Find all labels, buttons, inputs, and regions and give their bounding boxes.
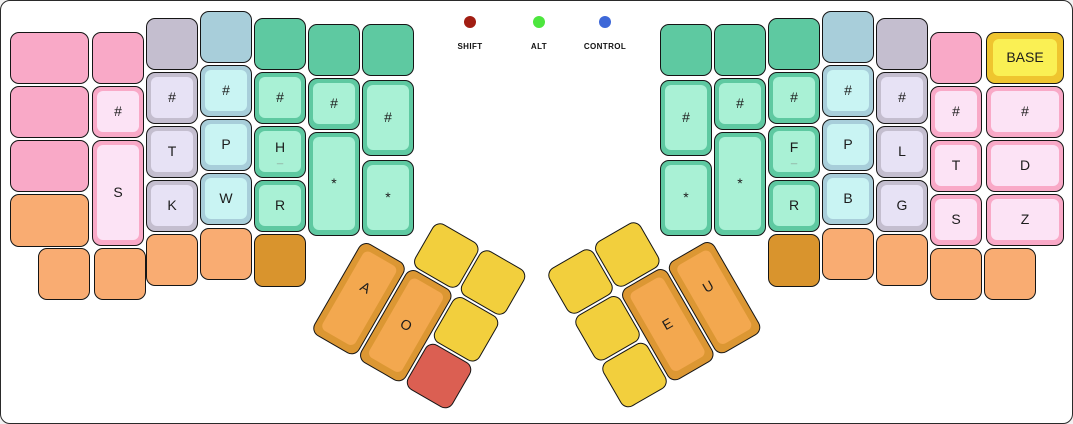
lh-w-key[interactable]: W <box>200 173 252 225</box>
lt-a-key-label: A <box>357 279 373 297</box>
lh-col5-row1-key[interactable] <box>254 18 306 70</box>
lh-s-key[interactable]: S <box>92 140 144 246</box>
control-indicator-label: CONTROL <box>584 42 626 51</box>
rh-col5-number-key-cap: # <box>881 77 923 118</box>
lh-col3-row1-key[interactable] <box>146 18 198 70</box>
lh-col6-number-key-label: # <box>330 96 338 111</box>
rh-s-key-cap: S <box>935 199 977 240</box>
rh-r-key-label: R <box>789 198 799 213</box>
rh-l-key-label: L <box>898 144 906 159</box>
lh-col7-number-key-label: # <box>384 110 392 125</box>
lh-col1-row1-key[interactable] <box>10 32 89 84</box>
steno-keyboard-visualizer-panel: SHIFTALTCONTROL #S#TK#PW#H_R#*#*#*#*#F_R… <box>0 0 1073 424</box>
rh-col4-number-key-label: # <box>844 83 852 98</box>
rh-col3-row1-key[interactable] <box>768 18 820 70</box>
rh-star-key-2-label: * <box>737 176 742 191</box>
lh-col2-number-key-label: # <box>114 104 122 119</box>
rh-col1-row1-key[interactable] <box>660 24 712 76</box>
lh-col5-number-key-label: # <box>276 90 284 105</box>
lh-col3-number-key-label: # <box>168 90 176 105</box>
rh-col5-row1-key[interactable] <box>876 18 928 70</box>
rh-col1-number-key-label: # <box>682 110 690 125</box>
rh-r-key-cap: R <box>773 185 815 226</box>
rh-b-key-cap: B <box>827 178 869 219</box>
rh-col5-number-key[interactable]: # <box>876 72 928 124</box>
layer-indicator-base-key-label: BASE <box>1006 50 1043 65</box>
lh-t-key[interactable]: T <box>146 126 198 178</box>
lh-bottom-key-2[interactable] <box>94 248 146 300</box>
rh-col7-number-key-label: # <box>1021 104 1029 119</box>
rh-p-key-cap: P <box>827 124 869 165</box>
lh-col5-number-key-cap: # <box>259 77 301 118</box>
lh-bottom-key-4[interactable] <box>200 228 252 280</box>
rh-col7-number-key-cap: # <box>991 91 1059 132</box>
rh-col6-number-key[interactable]: # <box>930 86 982 138</box>
rh-g-key-label: G <box>897 198 908 213</box>
lh-star-key-1-label: * <box>331 176 336 191</box>
rh-r-key[interactable]: R <box>768 180 820 232</box>
control-status-dot-icon <box>599 16 611 28</box>
rh-col4-row1-key[interactable] <box>822 11 874 63</box>
lh-r-key-cap: R <box>259 185 301 226</box>
rh-g-key[interactable]: G <box>876 180 928 232</box>
lh-bottom-key-3[interactable] <box>146 234 198 286</box>
lh-w-key-cap: W <box>205 178 247 219</box>
lh-t-key-cap: T <box>151 131 193 172</box>
rh-p-key[interactable]: P <box>822 119 874 171</box>
rh-f-key[interactable]: F_ <box>768 126 820 178</box>
rh-z-key-label: Z <box>1021 212 1030 227</box>
lh-col6-number-key-cap: # <box>313 83 355 124</box>
lh-r-key[interactable]: R <box>254 180 306 232</box>
lh-r-key-label: R <box>275 198 285 213</box>
lh-k-key-cap: K <box>151 185 193 226</box>
lh-col1-row3-key[interactable] <box>10 140 89 192</box>
lh-k-key-label: K <box>167 198 176 213</box>
rh-s-key[interactable]: S <box>930 194 982 246</box>
lh-col4-number-key-cap: # <box>205 70 247 111</box>
rh-bottom-key-5[interactable] <box>984 248 1036 300</box>
rh-star-key-2[interactable]: * <box>714 132 766 236</box>
lh-col6-number-key[interactable]: # <box>308 78 360 130</box>
indicator-control: CONTROL <box>560 16 650 51</box>
rh-bottom-key-4[interactable] <box>930 248 982 300</box>
rh-bottom-key-2[interactable] <box>822 228 874 280</box>
rh-col2-number-key-cap: # <box>719 83 761 124</box>
lh-col3-number-key[interactable]: # <box>146 72 198 124</box>
rh-star-key-2-cap: * <box>719 137 761 230</box>
rh-col2-number-key-label: # <box>736 96 744 111</box>
rh-z-key[interactable]: Z <box>986 194 1064 246</box>
lh-t-key-label: T <box>168 144 177 159</box>
lh-p-key-label: P <box>221 137 230 152</box>
layer-indicator-base-key-cap: BASE <box>993 39 1057 76</box>
rh-col4-number-key[interactable]: # <box>822 65 874 117</box>
lh-col6-row1-key[interactable] <box>308 24 360 76</box>
rh-l-key-cap: L <box>881 131 923 172</box>
lh-col3-number-key-cap: # <box>151 77 193 118</box>
lh-bottom-key-5[interactable] <box>254 234 306 287</box>
lh-star-key-1[interactable]: * <box>308 132 360 236</box>
rh-t-key[interactable]: T <box>930 140 982 192</box>
rt-u-key-label: U <box>700 278 716 296</box>
lh-col2-number-key[interactable]: # <box>92 86 144 138</box>
rh-d-key-label: D <box>1020 158 1030 173</box>
rh-t-key-label: T <box>952 158 961 173</box>
rt-e-key-label: E <box>660 315 676 333</box>
lh-col1-row4-key[interactable] <box>10 194 89 247</box>
lh-h-key[interactable]: H_ <box>254 126 306 178</box>
alt-status-dot-icon <box>533 16 545 28</box>
lh-col2-row1-key[interactable] <box>92 32 144 84</box>
rh-star-key-1-label: * <box>683 190 688 205</box>
lh-star-key-2[interactable]: * <box>362 160 414 236</box>
rh-z-key-cap: Z <box>991 199 1059 240</box>
shift-status-dot-icon <box>464 16 476 28</box>
rh-bottom-key-1[interactable] <box>768 234 820 287</box>
lh-col7-number-key[interactable]: # <box>362 80 414 156</box>
rh-d-key[interactable]: D <box>986 140 1064 192</box>
lh-star-key-2-label: * <box>385 190 390 205</box>
rh-col2-row1-key[interactable] <box>714 24 766 76</box>
rh-col6-row1-key[interactable] <box>930 32 982 84</box>
lh-w-key-label: W <box>219 191 232 206</box>
rh-col6-number-key-label: # <box>952 104 960 119</box>
rh-col7-number-key[interactable]: # <box>986 86 1064 138</box>
shift-indicator-label: SHIFT <box>457 42 482 51</box>
lh-col7-row1-key[interactable] <box>362 24 414 76</box>
rh-col3-number-key-label: # <box>790 90 798 105</box>
lh-p-key[interactable]: P <box>200 119 252 171</box>
lh-s-key-cap: S <box>97 145 139 240</box>
rh-star-key-1-cap: * <box>665 165 707 230</box>
rh-bottom-key-3[interactable] <box>876 234 928 286</box>
lh-col1-row2-key[interactable] <box>10 86 89 138</box>
rh-star-key-1[interactable]: * <box>660 160 712 236</box>
lh-star-key-1-cap: * <box>313 137 355 230</box>
lh-p-key-cap: P <box>205 124 247 165</box>
lh-col4-number-key-label: # <box>222 83 230 98</box>
lh-col4-row1-key[interactable] <box>200 11 252 63</box>
rh-col1-number-key-cap: # <box>665 85 707 150</box>
rh-b-key[interactable]: B <box>822 173 874 225</box>
rh-col6-number-key-cap: # <box>935 91 977 132</box>
rh-b-key-label: B <box>843 191 852 206</box>
lh-bottom-key-1[interactable] <box>38 248 90 300</box>
rh-p-key-label: P <box>843 137 852 152</box>
lh-star-key-2-cap: * <box>367 165 409 230</box>
lh-k-key[interactable]: K <box>146 180 198 232</box>
rh-col3-number-key[interactable]: # <box>768 72 820 124</box>
alt-indicator-label: ALT <box>531 42 547 51</box>
lh-h-key-hold-label: _ <box>277 156 283 163</box>
lh-h-key-cap: H_ <box>259 131 301 172</box>
rh-t-key-cap: T <box>935 145 977 186</box>
layer-indicator-base-key[interactable]: BASE <box>986 32 1064 84</box>
rh-f-key-cap: F_ <box>773 131 815 172</box>
rh-col5-number-key-label: # <box>898 90 906 105</box>
rh-col4-number-key-cap: # <box>827 70 869 111</box>
rh-l-key[interactable]: L <box>876 126 928 178</box>
rh-f-key-hold-label: _ <box>791 156 797 163</box>
lh-s-key-label: S <box>113 185 122 200</box>
rh-g-key-cap: G <box>881 185 923 226</box>
rh-d-key-cap: D <box>991 145 1059 186</box>
rh-col2-number-key[interactable]: # <box>714 78 766 130</box>
lh-col4-number-key[interactable]: # <box>200 65 252 117</box>
lh-col2-number-key-cap: # <box>97 91 139 132</box>
rh-col3-number-key-cap: # <box>773 77 815 118</box>
rh-col1-number-key[interactable]: # <box>660 80 712 156</box>
rh-s-key-label: S <box>951 212 960 227</box>
lh-col7-number-key-cap: # <box>367 85 409 150</box>
lt-o-key-label: O <box>398 316 415 334</box>
lh-col5-number-key[interactable]: # <box>254 72 306 124</box>
